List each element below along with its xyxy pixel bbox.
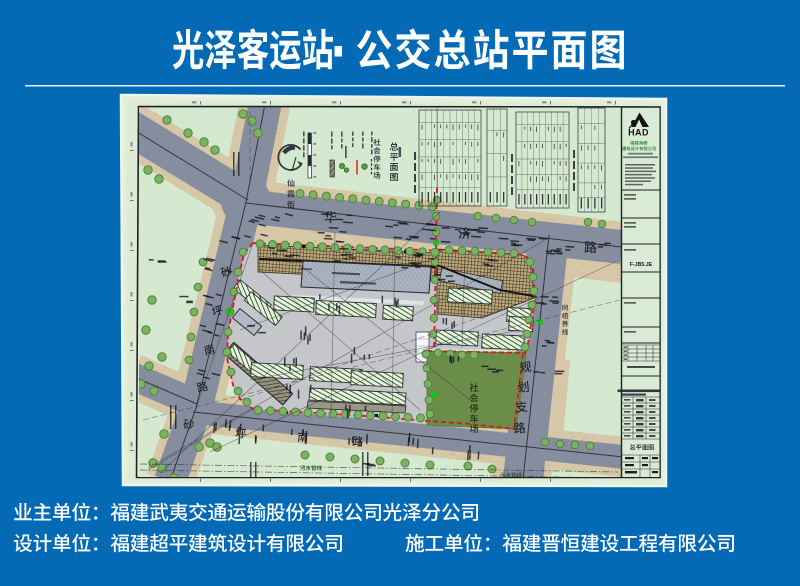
svg-text:HAD: HAD (628, 127, 649, 137)
svg-text:F-JB5.JE: F-JB5.JE (630, 262, 653, 268)
